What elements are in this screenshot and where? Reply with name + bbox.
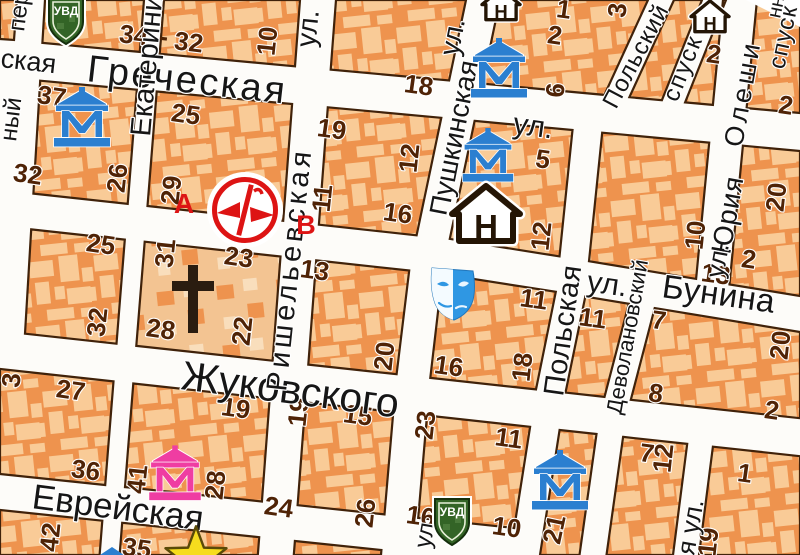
svg-text:10: 10	[490, 510, 523, 544]
svg-text:ул.: ул.	[699, 241, 735, 281]
svg-text:25: 25	[84, 227, 117, 261]
svg-text:10: 10	[251, 25, 284, 57]
svg-text:19: 19	[315, 112, 348, 146]
svg-text:пер: пер	[3, 0, 35, 33]
svg-text:26: 26	[349, 497, 382, 529]
svg-text:12: 12	[525, 220, 558, 252]
svg-text:31: 31	[149, 237, 182, 269]
svg-text:18: 18	[506, 351, 539, 383]
svg-text:23: 23	[409, 409, 442, 441]
svg-text:А: А	[174, 188, 194, 219]
svg-text:16: 16	[381, 196, 414, 230]
svg-text:32: 32	[173, 25, 205, 58]
svg-text:ская: ская	[0, 43, 58, 79]
svg-text:В: В	[296, 210, 316, 240]
svg-text:26: 26	[101, 162, 134, 194]
svg-text:27: 27	[54, 373, 87, 407]
svg-text:20: 20	[760, 181, 793, 213]
svg-text:ул.: ул.	[511, 107, 555, 145]
svg-text:24: 24	[262, 490, 295, 524]
svg-text:20: 20	[368, 340, 401, 372]
svg-text:20: 20	[764, 329, 797, 361]
svg-text:42: 42	[34, 521, 67, 553]
svg-text:21: 21	[536, 512, 571, 547]
svg-text:12: 12	[647, 442, 680, 474]
svg-text:ул.: ул.	[290, 8, 325, 49]
svg-text:35: 35	[120, 531, 153, 555]
svg-text:32: 32	[11, 157, 44, 191]
svg-text:28: 28	[199, 469, 232, 501]
svg-text:32: 32	[81, 306, 114, 338]
svg-text:11: 11	[518, 282, 549, 316]
svg-text:22: 22	[226, 315, 259, 347]
svg-text:11: 11	[493, 421, 524, 455]
svg-text:18: 18	[402, 68, 435, 102]
svg-text:12: 12	[393, 142, 426, 174]
svg-text:16: 16	[432, 349, 465, 383]
svg-text:28: 28	[144, 312, 177, 346]
